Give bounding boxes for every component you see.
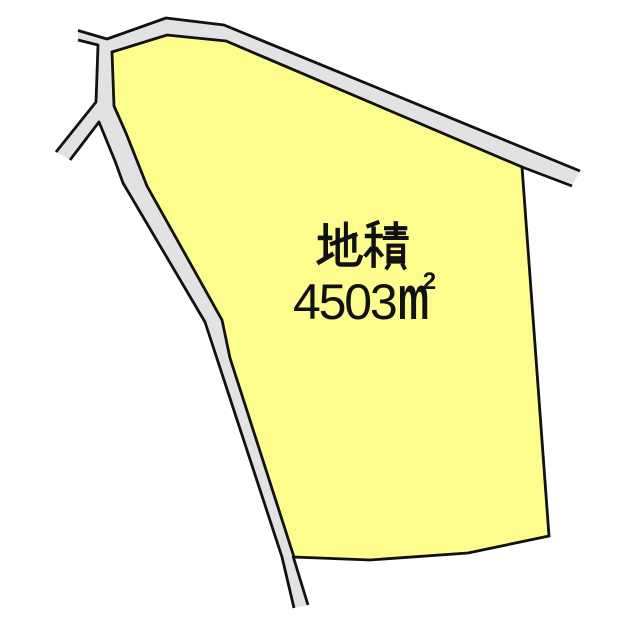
svg-text:4503: 4503 <box>293 274 396 330</box>
svg-text:2: 2 <box>423 268 436 295</box>
